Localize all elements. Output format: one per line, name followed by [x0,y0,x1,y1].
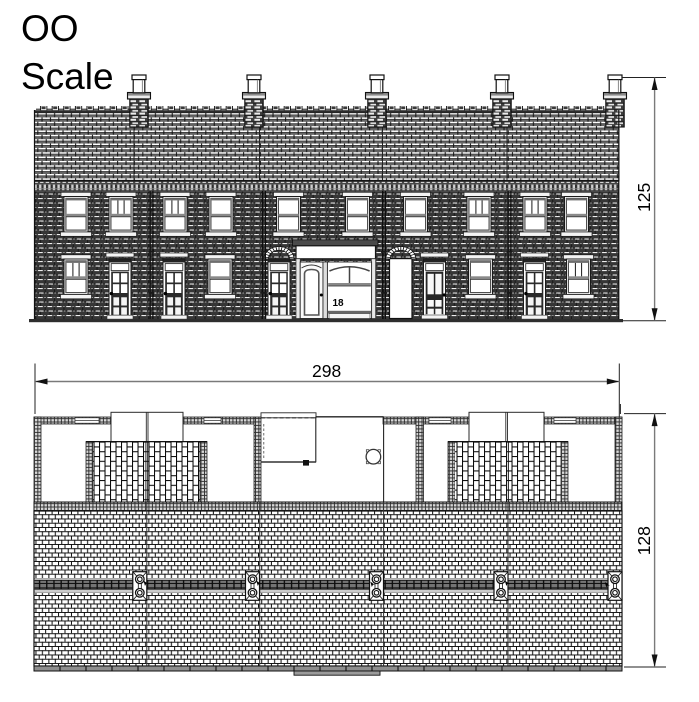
svg-text:Scale: Scale [21,56,114,97]
svg-text:128: 128 [634,526,654,555]
svg-text:18: 18 [333,298,345,309]
svg-text:125: 125 [634,183,654,212]
svg-text:298: 298 [312,361,341,381]
svg-text:OO: OO [21,8,79,49]
